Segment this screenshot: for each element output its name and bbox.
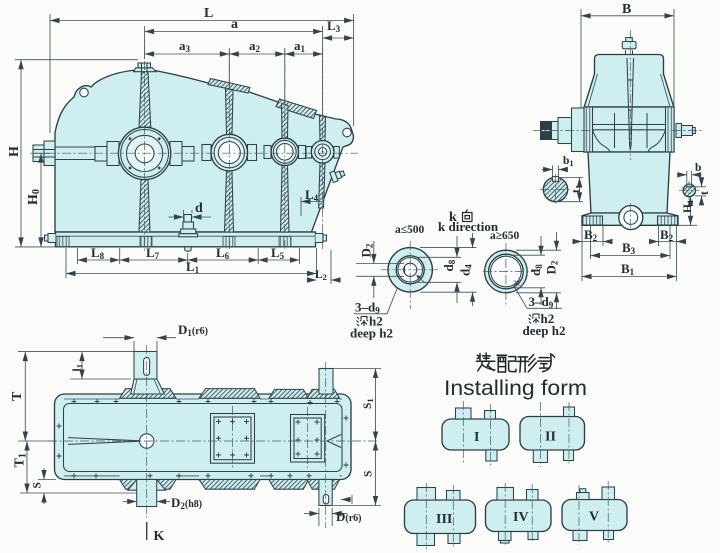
svg-text:H: H [7,146,22,157]
svg-text:d: d [195,201,203,216]
svg-text:S: S [363,471,375,477]
svg-text:Installing form: Installing form [444,377,587,400]
svg-text:S: S [32,482,44,488]
svg-text:I: I [474,430,479,445]
svg-text:K: K [154,529,165,544]
svg-text:L: L [204,6,213,21]
svg-text:B: B [622,2,631,17]
svg-text:deep h2: deep h2 [523,323,566,338]
svg-text:deep h2: deep h2 [350,326,393,341]
svg-text:V: V [589,510,599,525]
svg-text:a: a [231,17,238,32]
svg-text:b: b [695,162,701,174]
svg-text:a≥650: a≥650 [490,230,520,242]
svg-text:II: II [545,430,556,445]
svg-text:IV: IV [513,510,529,525]
svg-text:t: t [699,191,711,195]
svg-text:a≤500: a≤500 [395,224,425,236]
svg-text:T: T [10,391,25,401]
svg-text:III: III [436,512,452,527]
